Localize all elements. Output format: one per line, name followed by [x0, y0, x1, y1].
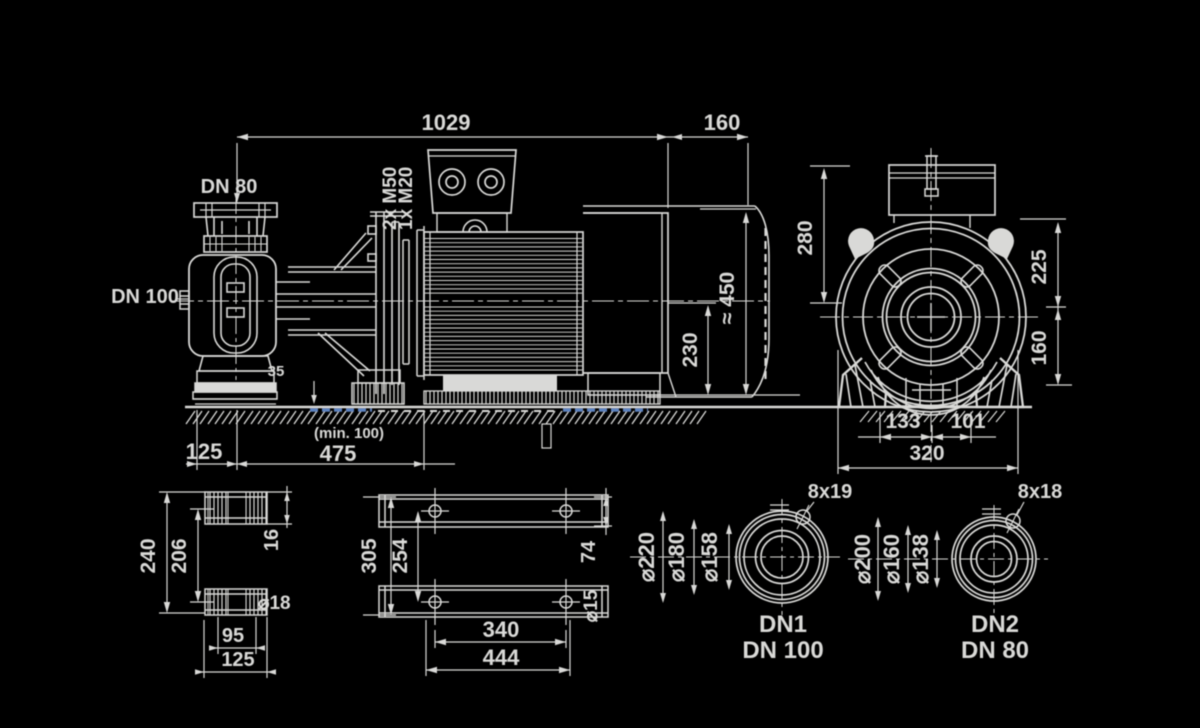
- svg-text:DN1: DN1: [759, 611, 807, 638]
- svg-text:1029: 1029: [422, 110, 471, 135]
- svg-text:DN2: DN2: [971, 611, 1019, 638]
- svg-text:340: 340: [483, 617, 520, 642]
- svg-text:475: 475: [320, 441, 357, 466]
- svg-text:125: 125: [221, 649, 254, 671]
- svg-text:160: 160: [704, 110, 741, 135]
- svg-text:⌀15: ⌀15: [581, 589, 602, 622]
- svg-text:230: 230: [679, 332, 702, 367]
- svg-text:⌀200: ⌀200: [850, 534, 875, 584]
- svg-text:95: 95: [222, 625, 244, 647]
- svg-text:160: 160: [1028, 330, 1051, 365]
- svg-text:8x19: 8x19: [808, 481, 853, 503]
- svg-text:⌀180: ⌀180: [664, 532, 689, 582]
- svg-text:280: 280: [794, 220, 817, 255]
- svg-text:206: 206: [168, 538, 191, 573]
- svg-text:(min. 100): (min. 100): [314, 425, 384, 442]
- svg-text:1x M20: 1x M20: [396, 167, 417, 230]
- svg-text:225: 225: [1028, 249, 1051, 284]
- svg-text:⌀158: ⌀158: [697, 532, 722, 582]
- svg-text:DN 100: DN 100: [111, 286, 179, 308]
- svg-text:DN 80: DN 80: [961, 637, 1029, 664]
- svg-text:DN 80: DN 80: [201, 176, 258, 198]
- svg-text:8x18: 8x18: [1018, 481, 1063, 503]
- svg-text:⌀160: ⌀160: [879, 534, 904, 584]
- svg-text:⌀220: ⌀220: [634, 532, 659, 582]
- svg-text:101: 101: [950, 410, 985, 433]
- svg-text:DN 100: DN 100: [742, 637, 823, 664]
- svg-text:320: 320: [909, 442, 944, 465]
- svg-text:35: 35: [268, 363, 285, 380]
- svg-text:74: 74: [578, 540, 600, 563]
- svg-text:16: 16: [261, 529, 283, 551]
- svg-text:240: 240: [137, 538, 160, 573]
- svg-text:133: 133: [885, 410, 920, 433]
- svg-text:⌀138: ⌀138: [908, 534, 933, 584]
- svg-text:444: 444: [483, 645, 520, 670]
- svg-text:≈ 450: ≈ 450: [716, 272, 739, 324]
- svg-text:125: 125: [186, 439, 223, 464]
- svg-text:⌀18: ⌀18: [258, 593, 291, 614]
- svg-text:305: 305: [358, 538, 381, 573]
- svg-text:254: 254: [389, 538, 412, 573]
